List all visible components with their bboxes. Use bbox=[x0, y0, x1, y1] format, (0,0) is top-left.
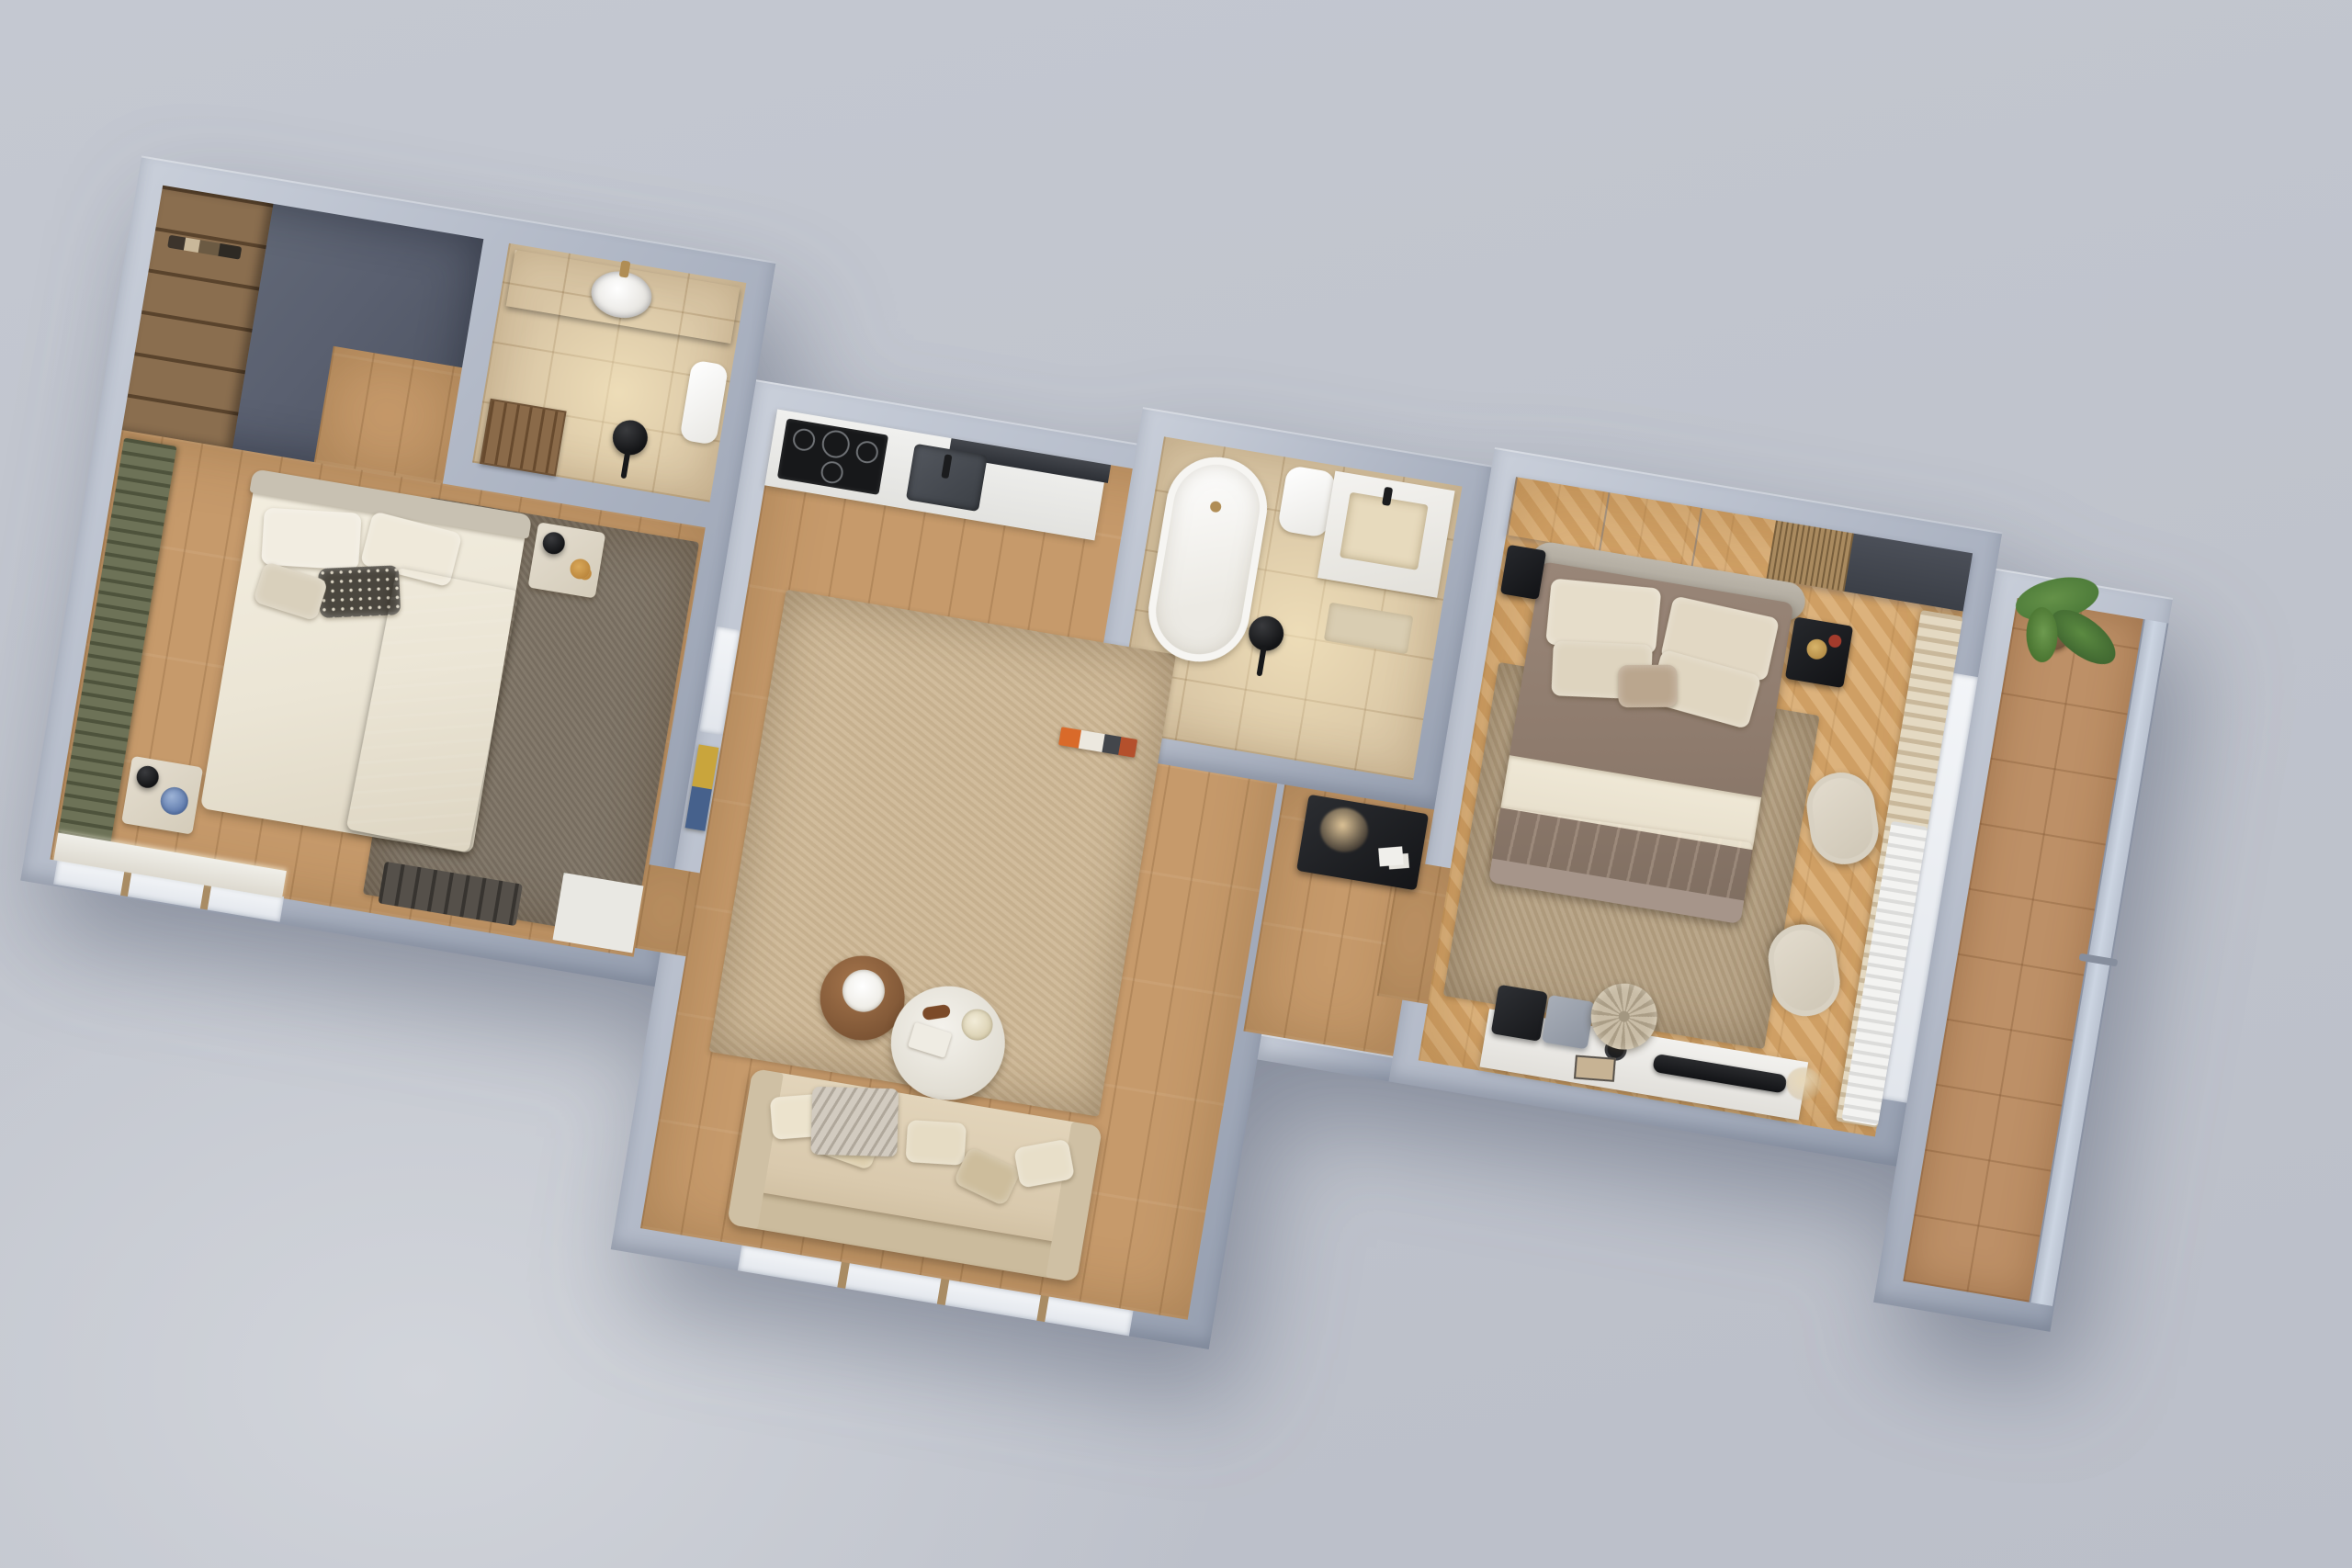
desk-art-frame bbox=[1574, 1055, 1616, 1081]
bathroom1-door bbox=[480, 399, 567, 477]
console-photos bbox=[1378, 846, 1403, 866]
sofa-pillow3 bbox=[905, 1120, 967, 1166]
apartment-plan bbox=[0, 119, 2203, 1506]
balcony-plant-leaf3 bbox=[2026, 607, 2058, 662]
desk-chair-black bbox=[1491, 985, 1548, 1042]
bedroom1-nightstand-a bbox=[527, 522, 605, 598]
sofa-throw bbox=[810, 1087, 899, 1156]
bedroom1-pillow bbox=[261, 508, 362, 570]
bedroom1-marble-threshold bbox=[552, 873, 643, 953]
floorplan-render bbox=[0, 0, 2352, 1568]
master-pillow-small bbox=[1618, 665, 1677, 708]
entry-wood-transition bbox=[314, 346, 462, 484]
master-nightstand-left bbox=[1500, 545, 1546, 600]
desk-chair-gray bbox=[1542, 995, 1595, 1050]
